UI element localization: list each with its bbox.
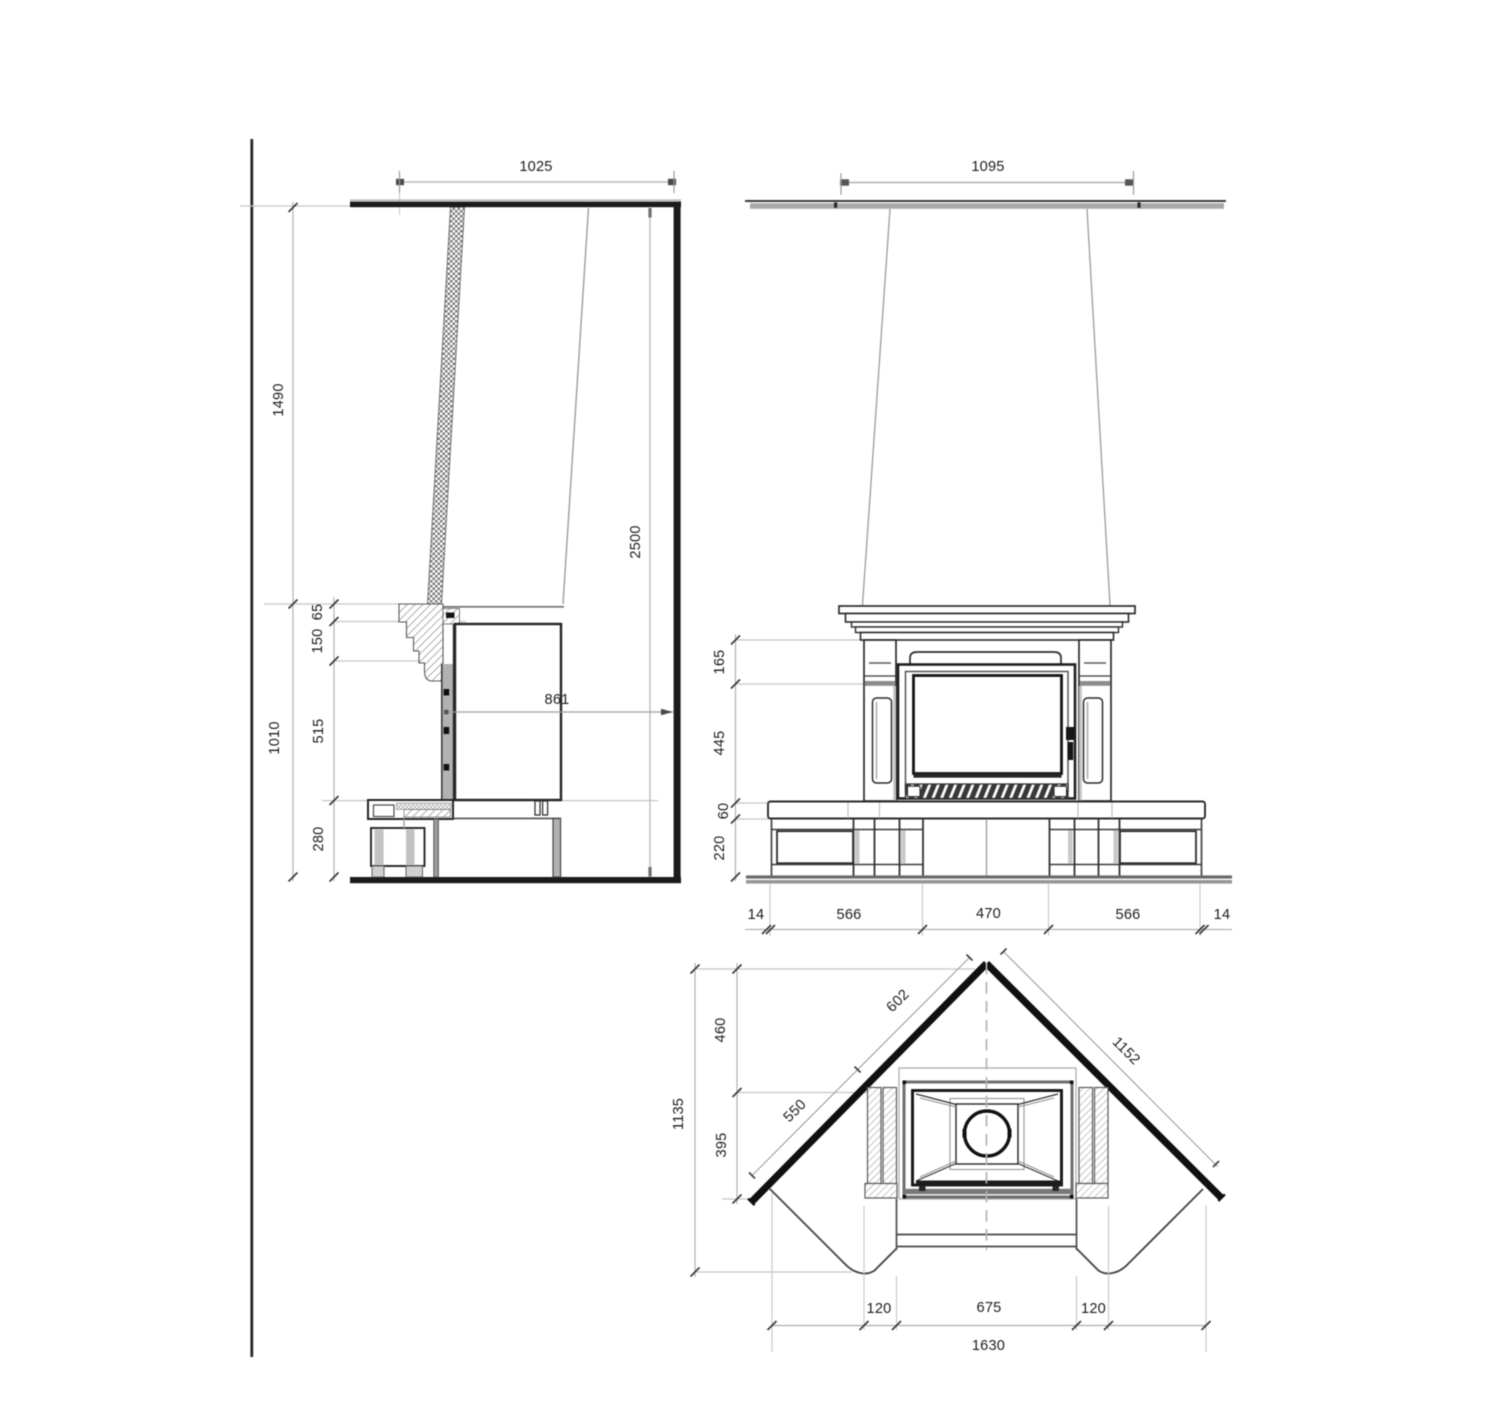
svg-text:1135: 1135: [671, 1098, 687, 1130]
svg-text:1490: 1490: [271, 383, 287, 416]
svg-text:65: 65: [310, 604, 326, 621]
svg-text:470: 470: [976, 906, 1001, 922]
svg-text:220: 220: [712, 836, 728, 861]
svg-text:675: 675: [977, 1300, 1002, 1316]
svg-text:60: 60: [716, 803, 732, 820]
svg-text:165: 165: [712, 650, 728, 675]
svg-text:280: 280: [311, 827, 327, 852]
svg-text:2500: 2500: [628, 525, 644, 558]
svg-text:14: 14: [748, 907, 765, 923]
svg-text:1010: 1010: [267, 721, 283, 754]
svg-text:515: 515: [311, 719, 327, 744]
svg-text:150: 150: [310, 629, 326, 654]
svg-text:445: 445: [712, 731, 728, 756]
svg-text:1630: 1630: [972, 1338, 1005, 1354]
svg-text:566: 566: [1116, 907, 1141, 923]
svg-text:861: 861: [545, 692, 570, 708]
svg-text:566: 566: [837, 907, 862, 923]
svg-text:395: 395: [714, 1133, 730, 1158]
svg-text:1095: 1095: [971, 159, 1004, 175]
svg-text:14: 14: [1214, 907, 1231, 923]
svg-text:120: 120: [1081, 1301, 1106, 1317]
svg-text:460: 460: [713, 1018, 729, 1043]
svg-text:120: 120: [867, 1301, 892, 1317]
svg-text:1025: 1025: [519, 159, 552, 175]
